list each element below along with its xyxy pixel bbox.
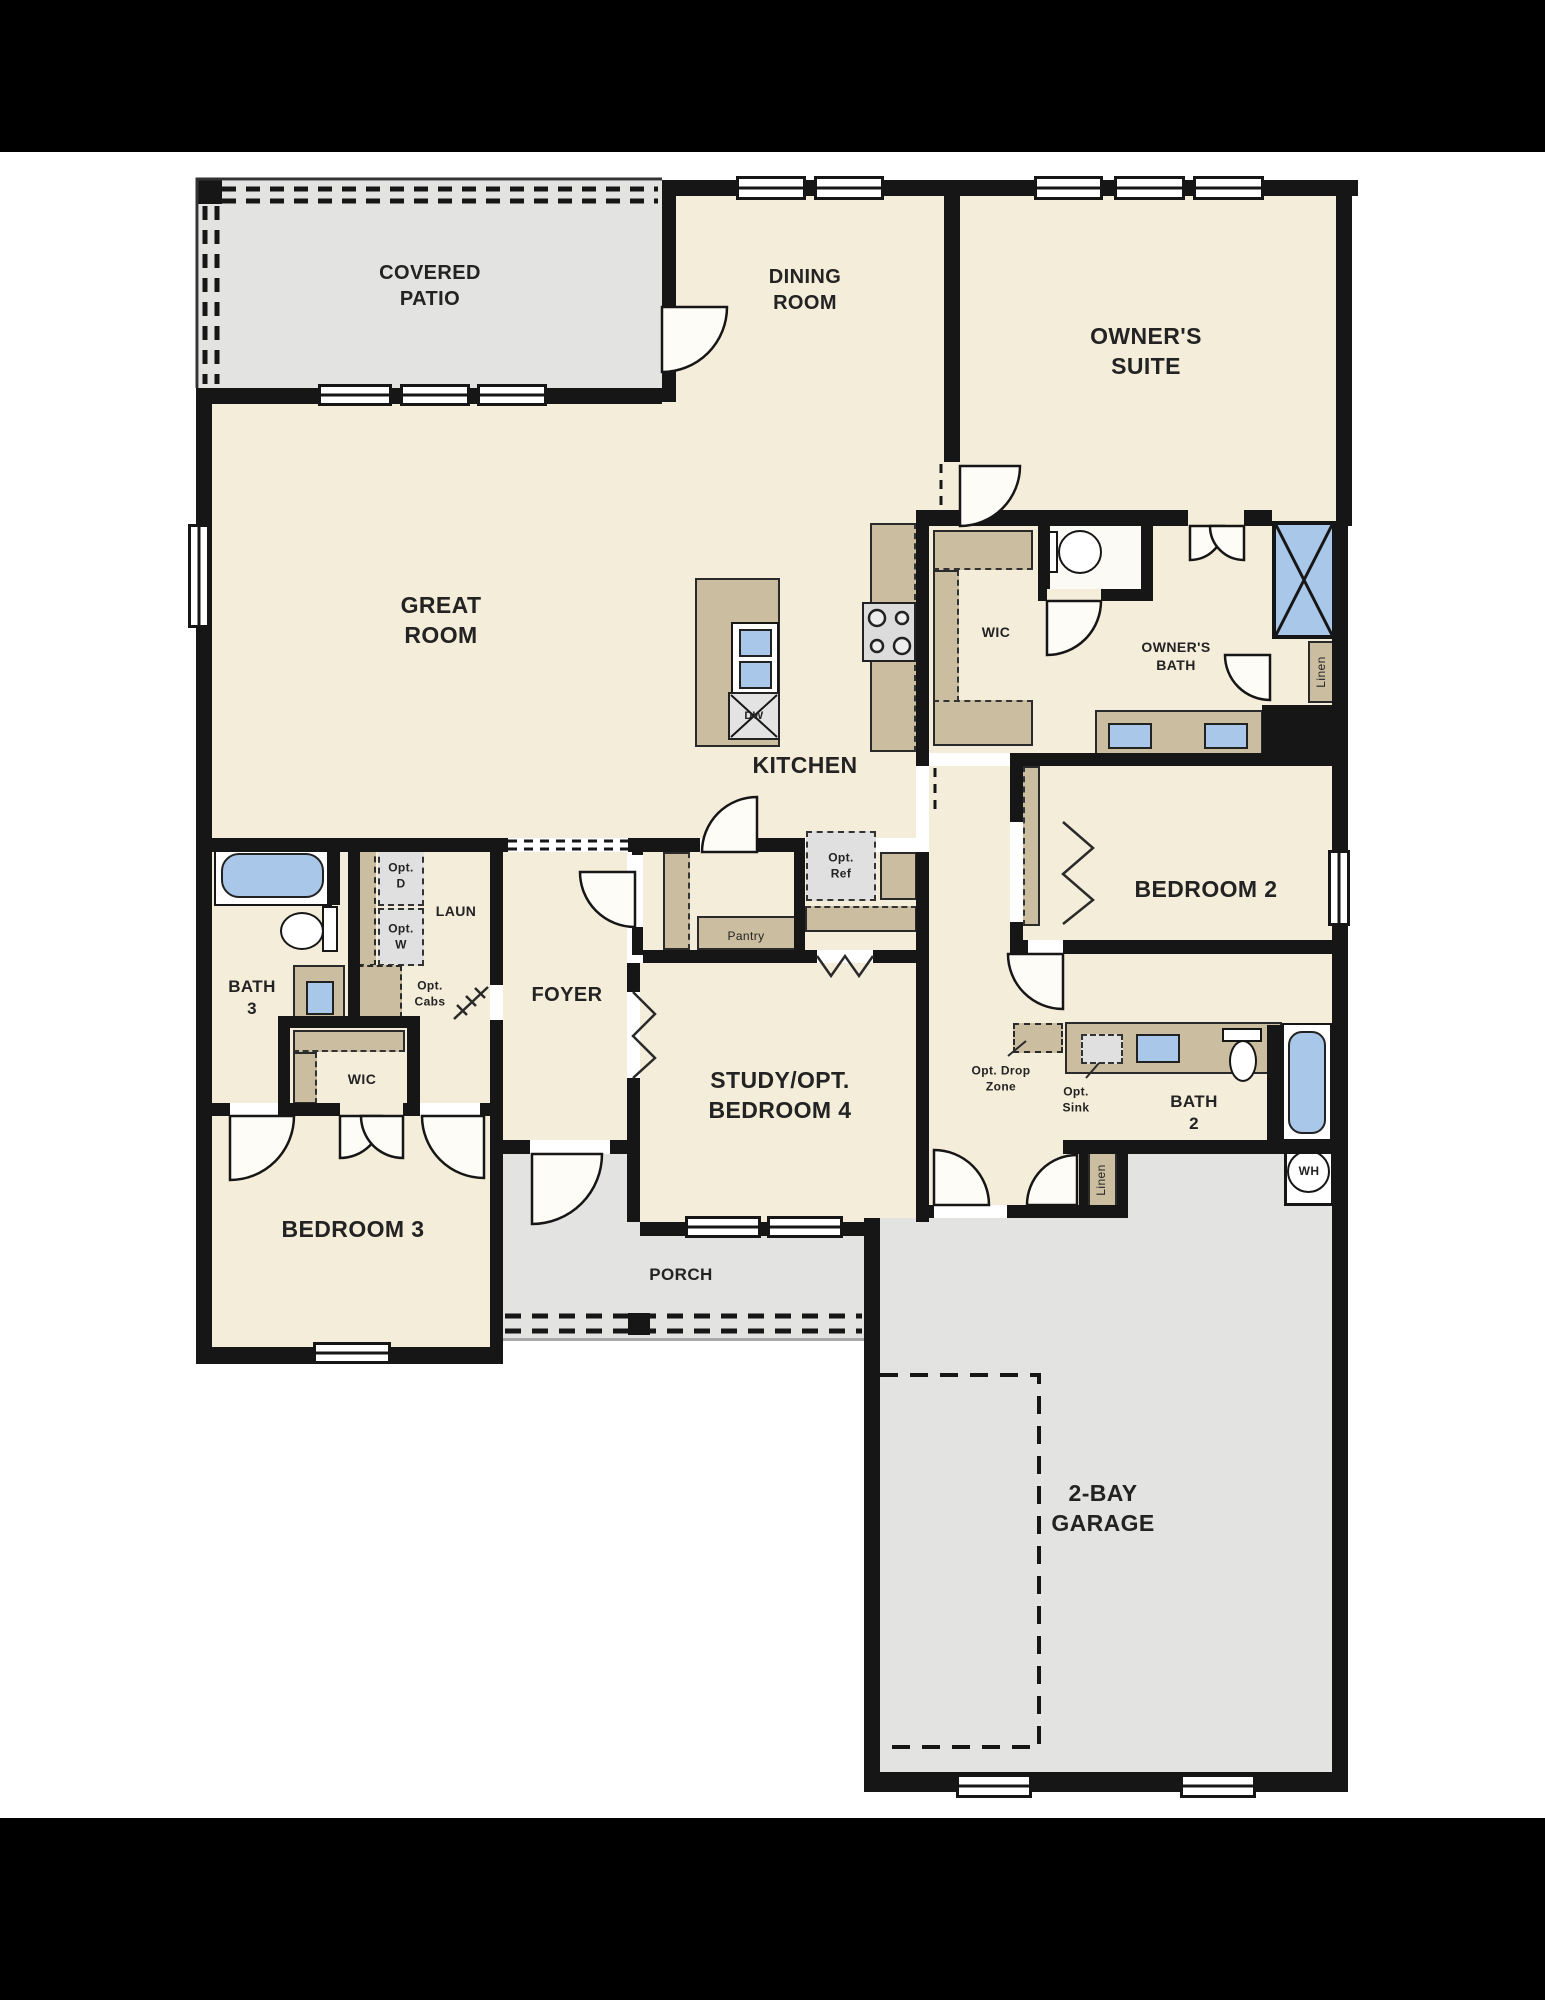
wall-garage-west (864, 1218, 880, 1788)
label-wic-owner: WIC (982, 623, 1010, 641)
window-suite-3 (1193, 176, 1264, 200)
floorplan-page: COVERED PATIO DINING ROOM OWNER'S SUITE … (0, 0, 1545, 2000)
label-opt-ref: Opt. Ref (828, 850, 854, 881)
wall-pantry-west-b (632, 927, 643, 955)
wall-front-b (610, 1140, 640, 1154)
wall-study-east (916, 963, 929, 1222)
label-kitchen: KITCHEN (752, 751, 857, 781)
wall-bath-bedroom2-a (916, 753, 929, 766)
wall-pantry-east (794, 852, 805, 950)
wall-pantry-west-a (632, 838, 643, 855)
laundry-cabinet-strip (358, 846, 376, 966)
owners-sink-left (1108, 723, 1152, 749)
wall-bedroom2-south-b (1063, 940, 1348, 954)
wall-bedroom2-west-b (1010, 922, 1023, 940)
label-opt-drop-zone: Opt. Drop Zone (972, 1063, 1031, 1094)
wall-dining-suite (944, 180, 960, 462)
bath3-sink (306, 981, 334, 1015)
wall-toilet-room-east (1141, 526, 1153, 589)
label-laundry: LAUN (436, 902, 476, 920)
label-bedroom2: BEDROOM 2 (1135, 875, 1278, 905)
wall-wic-west (916, 510, 929, 753)
label-dishwasher: DW (744, 709, 763, 723)
label-porch: PORCH (649, 1264, 712, 1286)
window-suite-1 (1034, 176, 1103, 200)
bath2-toilet-bowl (1229, 1040, 1257, 1082)
window-dining-1 (736, 176, 806, 200)
wic-bed3-cabinet-left (293, 1052, 317, 1104)
wall-toilet-room-south-a (1038, 589, 1047, 601)
wall-bath-top-a (916, 510, 1188, 526)
wall-bed3-north-a (196, 1103, 230, 1116)
label-dining-room: DINING ROOM (769, 264, 841, 316)
bath2-optional-sink (1081, 1034, 1123, 1064)
window-garage-1 (956, 1774, 1032, 1798)
wic-owner-cabinet-left (933, 570, 959, 702)
drop-zone-cabinet-band (1023, 766, 1040, 926)
wall-pantry-top-b (757, 838, 805, 852)
wall-wic3-right (407, 1016, 420, 1116)
label-bedroom3: BEDROOM 3 (282, 1215, 425, 1245)
wall-foyer-west-a (490, 838, 503, 985)
window-suite-2 (1114, 176, 1185, 200)
wall-bedroom2-west-a (1010, 766, 1023, 822)
pantry-shelf-left (663, 852, 690, 950)
label-foyer: FOYER (532, 982, 603, 1008)
window-patio-2 (400, 384, 470, 406)
wall-bath2-divider (1267, 1025, 1282, 1140)
hallway-floor (929, 766, 1010, 1205)
wic-owner-cabinet-top (933, 530, 1033, 570)
wall-toilet-room-south-b (1101, 589, 1153, 601)
label-owners-suite: OWNER'S SUITE (1090, 322, 1202, 382)
wall-bed3-north-c (403, 1103, 420, 1116)
wall-bed3-north-b (290, 1103, 340, 1116)
owners-shower (1272, 521, 1336, 639)
wall-bath2-south (1063, 1140, 1348, 1154)
wall-wic3-left (278, 1028, 290, 1116)
label-bath2: BATH 2 (1170, 1091, 1218, 1135)
wall-bedroom2-south-a (1010, 940, 1028, 954)
wall-wic3-top (278, 1016, 420, 1028)
wall-suite-east (1336, 180, 1352, 526)
wall-study-north-a (643, 950, 817, 963)
island-sink-basin-bottom (739, 661, 772, 689)
bath3-toilet-tank (322, 906, 338, 952)
label-covered-patio: COVERED PATIO (379, 260, 481, 312)
wall-bed3-east (490, 1103, 503, 1364)
window-bedroom2-east (1328, 850, 1350, 926)
island-sink-basin-top (739, 629, 772, 657)
wall-patio-right-upper (662, 180, 676, 307)
bottom-black-bar (0, 1818, 1545, 2000)
wall-bath3-laundry (348, 852, 360, 1016)
wall-study-west-a (627, 963, 640, 992)
kitchen-counter-side (880, 852, 917, 900)
wall-study-north-b (873, 950, 929, 963)
window-study-2 (767, 1216, 843, 1238)
window-dining-2 (814, 176, 884, 200)
window-garage-2 (1180, 1774, 1256, 1798)
window-greatroom-west (188, 524, 210, 628)
porch-post (628, 1313, 650, 1335)
label-great-room: GREAT ROOM (401, 591, 482, 651)
label-owners-bath: OWNER'S BATH (1141, 638, 1210, 674)
wall-nook-east (916, 852, 929, 950)
label-opt-sink: Opt. Sink (1063, 1084, 1090, 1115)
kitchen-counter-south (805, 906, 917, 932)
bedroom2-floor (1023, 766, 1332, 940)
label-bath3: BATH 3 (228, 976, 276, 1020)
window-patio-3 (477, 384, 547, 406)
bath2-tub (1288, 1031, 1326, 1134)
top-black-bar (0, 0, 1545, 152)
wall-hall-garage-b (1007, 1205, 1128, 1218)
label-opt-cabs: Opt. Cabs (415, 978, 446, 1009)
label-garage: 2-BAY GARAGE (1051, 1479, 1154, 1539)
label-water-heater: WH (1299, 1164, 1320, 1180)
bath3-tub (221, 853, 324, 898)
bath3-toilet-bowl (280, 912, 324, 950)
drop-zone-bench (1013, 1023, 1063, 1053)
wall-east-exterior (1332, 526, 1348, 1788)
label-opt-washer: Opt. W (388, 921, 414, 952)
wic-owner-cabinet-bottom (933, 700, 1033, 746)
wall-bath3-tub (327, 842, 340, 905)
porch-edge-line (503, 1338, 864, 1341)
bath2-sink (1136, 1034, 1180, 1063)
wic-bed3-cabinet-top (293, 1030, 405, 1052)
bath-wall-mass (1262, 705, 1336, 755)
wall-toilet-room-west (1038, 526, 1050, 589)
wall-patio-right-lower (662, 370, 676, 402)
wall-pantry-top-a (643, 838, 700, 852)
label-study: STUDY/OPT. BEDROOM 4 (709, 1066, 852, 1126)
label-linen2: Linen (1094, 1164, 1110, 1195)
wall-bath-bedroom2-b (1010, 753, 1348, 766)
label-linen1: Linen (1314, 656, 1330, 687)
owners-toilet-bowl (1058, 530, 1102, 574)
stove (862, 602, 916, 662)
wall-bath-top-b (1244, 510, 1272, 526)
label-pantry: Pantry (727, 929, 764, 945)
wall-greatroom-south-a (196, 838, 508, 852)
label-wic-bed3: WIC (348, 1070, 376, 1088)
label-opt-dryer: Opt. D (388, 860, 414, 891)
window-patio-1 (318, 384, 392, 406)
window-study-1 (685, 1216, 761, 1238)
owners-sink-right (1204, 723, 1248, 749)
wall-garage-south (864, 1772, 1348, 1792)
patio-corner-post (196, 178, 222, 204)
window-bedroom3 (313, 1342, 391, 1364)
